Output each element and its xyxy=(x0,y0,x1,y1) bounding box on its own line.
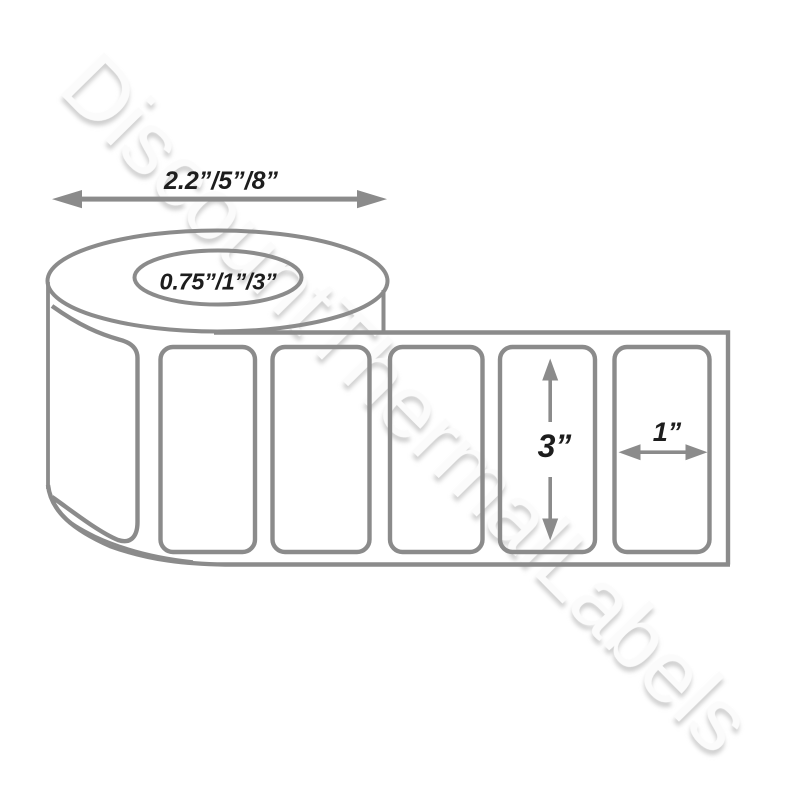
svg-text:0.75”/1”/3”: 0.75”/1”/3” xyxy=(160,269,277,295)
svg-text:3”: 3” xyxy=(538,428,572,464)
svg-text:2.2”/5”/8”: 2.2”/5”/8” xyxy=(163,167,278,195)
svg-text:1”: 1” xyxy=(653,417,682,447)
